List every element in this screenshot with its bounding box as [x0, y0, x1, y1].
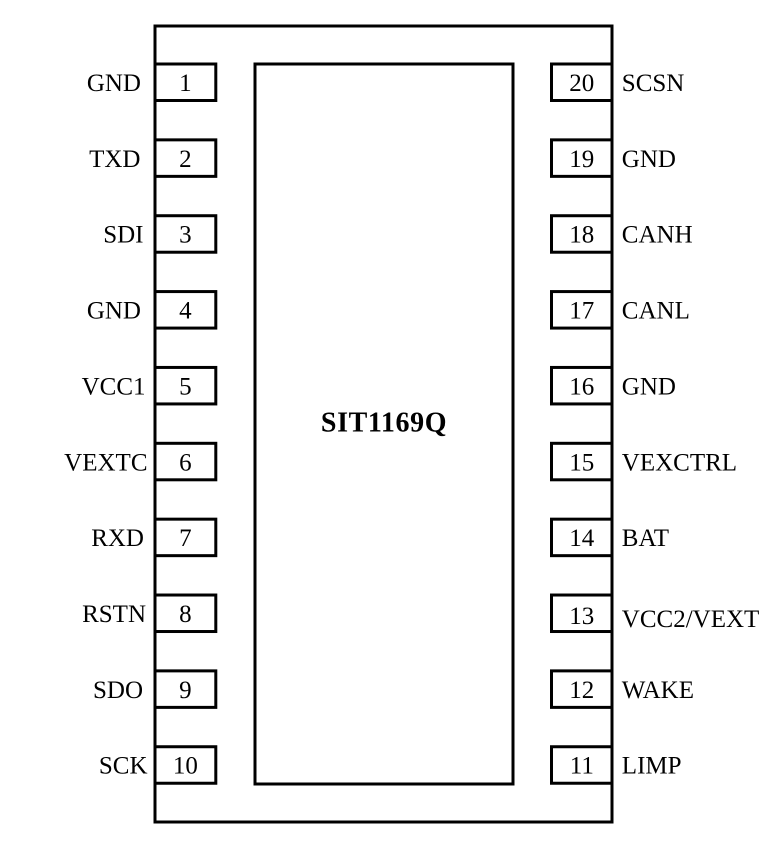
svg-text:15: 15 — [569, 449, 594, 476]
svg-text:10: 10 — [173, 753, 198, 780]
svg-text:SDO: SDO — [93, 677, 143, 704]
svg-text:14: 14 — [569, 525, 595, 552]
svg-text:1: 1 — [179, 70, 192, 97]
svg-text:GND: GND — [622, 373, 676, 400]
svg-text:SDI: SDI — [103, 222, 143, 249]
svg-text:19: 19 — [569, 146, 594, 173]
svg-text:7: 7 — [179, 525, 192, 552]
svg-text:6: 6 — [179, 449, 192, 476]
svg-text:VEXTC: VEXTC — [64, 449, 147, 476]
svg-text:3: 3 — [179, 222, 192, 249]
svg-text:VCC1: VCC1 — [82, 373, 146, 400]
svg-text:RXD: RXD — [91, 525, 144, 552]
svg-text:17: 17 — [569, 298, 594, 325]
svg-text:12: 12 — [569, 677, 594, 704]
svg-text:GND: GND — [87, 70, 141, 97]
svg-text:SCK: SCK — [99, 753, 148, 780]
svg-text:16: 16 — [569, 373, 594, 400]
svg-text:GND: GND — [87, 298, 141, 325]
svg-text:20: 20 — [569, 70, 594, 97]
svg-text:8: 8 — [179, 601, 192, 628]
svg-text:VCC2/VEXT: VCC2/VEXT — [622, 606, 760, 633]
svg-text:BAT: BAT — [622, 525, 669, 552]
svg-text:13: 13 — [569, 603, 594, 630]
svg-text:LIMP: LIMP — [622, 753, 682, 780]
svg-text:CANH: CANH — [622, 222, 693, 249]
svg-text:SCSN: SCSN — [622, 70, 685, 97]
svg-text:9: 9 — [179, 677, 192, 704]
svg-text:GND: GND — [622, 146, 676, 173]
svg-text:TXD: TXD — [89, 146, 140, 173]
svg-text:11: 11 — [570, 753, 594, 780]
svg-text:VEXCTRL: VEXCTRL — [622, 449, 737, 476]
svg-text:2: 2 — [179, 146, 192, 173]
svg-text:RSTN: RSTN — [82, 601, 146, 628]
svg-text:SIT1169Q: SIT1169Q — [321, 408, 447, 439]
svg-text:4: 4 — [179, 298, 192, 325]
svg-text:5: 5 — [179, 373, 192, 400]
svg-text:18: 18 — [569, 222, 594, 249]
svg-text:WAKE: WAKE — [622, 677, 694, 704]
svg-text:CANL: CANL — [622, 298, 690, 325]
